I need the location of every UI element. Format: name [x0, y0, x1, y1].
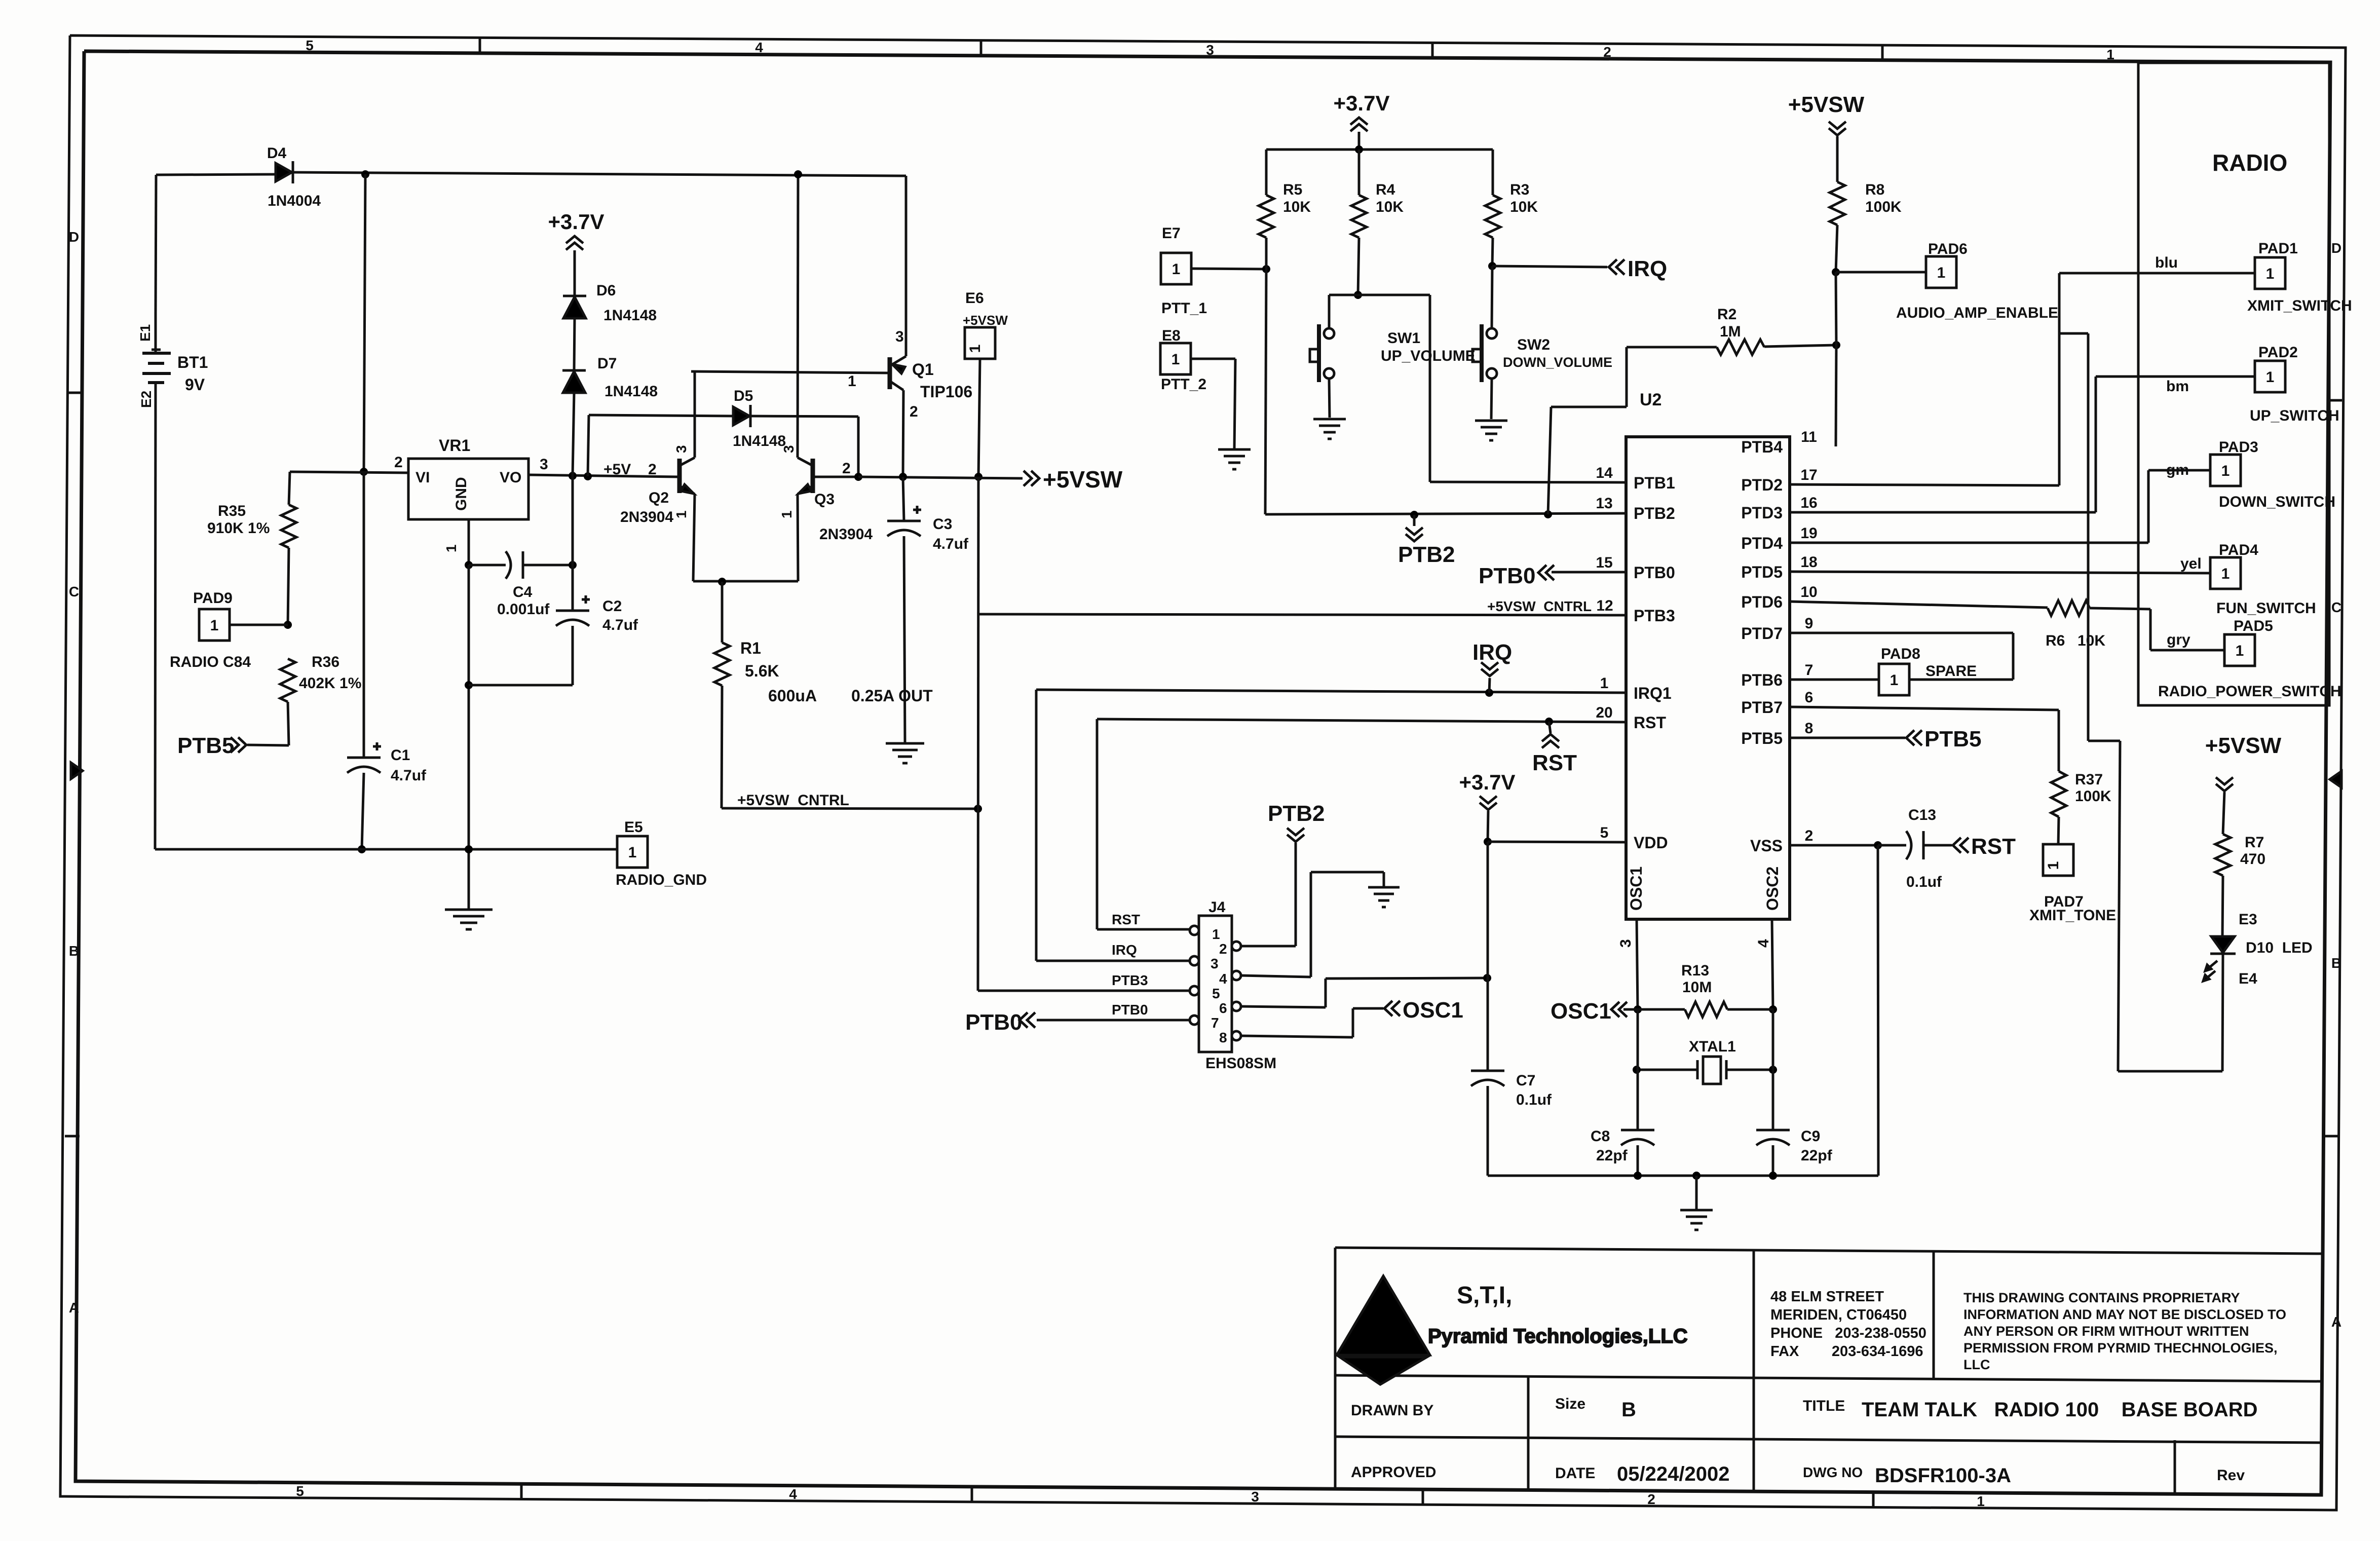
svg-text:1: 1 — [1600, 675, 1609, 692]
svg-text:IRQ: IRQ — [1112, 942, 1137, 958]
svg-text:11: 11 — [1801, 429, 1817, 445]
svg-text:C8: C8 — [1591, 1128, 1610, 1145]
svg-text:R5: R5 — [1283, 181, 1302, 198]
svg-text:C3: C3 — [933, 516, 952, 533]
svg-text:D5: D5 — [734, 388, 753, 404]
svg-text:+5VSW: +5VSW — [963, 313, 1008, 328]
svg-text:PERMISSION FROM PYRMID THECHNO: PERMISSION FROM PYRMID THECHNOLOGIES, — [1963, 1340, 2278, 1356]
svg-text:10K: 10K — [1376, 199, 1404, 215]
svg-text:R36: R36 — [312, 654, 339, 670]
svg-text:Q1: Q1 — [912, 360, 934, 379]
svg-text:R6: R6 — [2046, 632, 2065, 649]
svg-text:B: B — [69, 943, 79, 959]
svg-text:D10 LED: D10 LED — [2246, 939, 2313, 956]
svg-text:B: B — [2331, 955, 2341, 971]
svg-text:PTD4: PTD4 — [1741, 534, 1783, 552]
svg-text:1: 1 — [673, 510, 689, 518]
svg-text:RADIO_POWER_SWITCH: RADIO_POWER_SWITCH — [2158, 683, 2341, 700]
svg-text:XMIT_TONE: XMIT_TONE — [2029, 907, 2116, 924]
svg-text:PTB0: PTB0 — [1479, 563, 1535, 588]
svg-text:1: 1 — [2266, 266, 2275, 282]
svg-text:7: 7 — [1805, 662, 1814, 679]
svg-text:gry: gry — [2167, 631, 2190, 648]
svg-text:1N4004: 1N4004 — [268, 193, 321, 209]
svg-text:48 ELM STREET: 48 ELM STREET — [1770, 1289, 1884, 1305]
svg-text:100K: 100K — [2075, 788, 2111, 805]
svg-text:22pf: 22pf — [1801, 1147, 1833, 1164]
svg-text:R3: R3 — [1510, 181, 1529, 198]
svg-text:1: 1 — [1172, 261, 1181, 278]
svg-text:2: 2 — [1647, 1491, 1655, 1507]
svg-text:E3: E3 — [2239, 911, 2257, 928]
svg-text:DOWN_VOLUME: DOWN_VOLUME — [1503, 355, 1612, 370]
svg-text:C13: C13 — [1908, 807, 1936, 823]
svg-text:+5VSW: +5VSW — [2205, 733, 2282, 758]
svg-text:3: 3 — [540, 456, 548, 473]
svg-text:PHONE 203-238-0550: PHONE 203-238-0550 — [1770, 1325, 1926, 1341]
svg-text:5: 5 — [296, 1483, 304, 1499]
svg-text:A: A — [2331, 1314, 2341, 1330]
svg-text:10M: 10M — [1682, 979, 1712, 996]
svg-text:1: 1 — [1172, 351, 1180, 368]
svg-text:E6: E6 — [965, 290, 984, 307]
svg-text:1N4148: 1N4148 — [733, 433, 786, 449]
svg-text:RST: RST — [1532, 750, 1577, 775]
svg-text:+5V: +5V — [603, 461, 631, 478]
svg-text:1: 1 — [967, 345, 984, 353]
svg-text:FUN_SWITCH: FUN_SWITCH — [2216, 600, 2316, 617]
svg-text:3: 3 — [895, 328, 904, 345]
svg-text:VDD: VDD — [1634, 834, 1668, 852]
svg-text:C: C — [2331, 599, 2341, 615]
svg-text:D: D — [69, 229, 79, 245]
svg-text:1: 1 — [1977, 1493, 1985, 1509]
svg-text:17: 17 — [1800, 467, 1817, 483]
svg-text:PTT_1: PTT_1 — [1161, 300, 1207, 317]
svg-text:5: 5 — [1212, 986, 1220, 1001]
svg-text:MERIDEN, CT06450: MERIDEN, CT06450 — [1770, 1307, 1907, 1323]
svg-text:TEAM TALK RADIO 100 BASE: TEAM TALK RADIO 100 BASE BOARD — [1862, 1399, 2258, 1421]
svg-text:RADIO: RADIO — [2212, 149, 2287, 176]
svg-text:1N4148: 1N4148 — [603, 307, 657, 324]
svg-text:2: 2 — [842, 460, 851, 477]
svg-text:PAD6: PAD6 — [1928, 241, 1968, 257]
svg-text:D4: D4 — [267, 145, 287, 162]
svg-text:13: 13 — [1596, 495, 1612, 512]
svg-text:DRAWN BY: DRAWN BY — [1351, 1402, 1433, 1419]
svg-text:10: 10 — [1800, 584, 1817, 600]
svg-text:3: 3 — [1251, 1489, 1259, 1505]
svg-text:SW1: SW1 — [1387, 330, 1420, 347]
svg-text:C9: C9 — [1801, 1128, 1820, 1145]
svg-text:EHS08SM: EHS08SM — [1205, 1055, 1276, 1072]
svg-text:402K 1%: 402K 1% — [299, 675, 361, 692]
svg-text:6: 6 — [1219, 1000, 1227, 1016]
svg-text:910K 1%: 910K 1% — [207, 520, 270, 537]
svg-text:XMIT_SWITCH: XMIT_SWITCH — [2247, 297, 2352, 314]
svg-text:1: 1 — [2236, 643, 2244, 659]
svg-text:PAD1: PAD1 — [2258, 240, 2298, 257]
svg-text:20: 20 — [1596, 704, 1612, 721]
svg-text:PTB0: PTB0 — [1634, 563, 1675, 582]
svg-text:APPROVED: APPROVED — [1351, 1464, 1436, 1481]
svg-text:PTB0: PTB0 — [965, 1010, 1022, 1035]
svg-text:R7: R7 — [2245, 834, 2264, 851]
svg-text:PTB5: PTB5 — [1924, 727, 1981, 751]
svg-text:E7: E7 — [1162, 225, 1181, 242]
svg-text:D: D — [2331, 240, 2341, 256]
svg-text:15: 15 — [1596, 554, 1612, 571]
svg-text:05/224/2002: 05/224/2002 — [1617, 1463, 1729, 1485]
svg-text:C: C — [69, 584, 79, 599]
svg-text:1: 1 — [210, 617, 219, 634]
svg-text:9V: 9V — [185, 375, 205, 394]
svg-text:RST: RST — [1971, 834, 2016, 859]
svg-text:PTD7: PTD7 — [1741, 624, 1783, 643]
svg-text:9: 9 — [1805, 615, 1814, 632]
svg-text:OSC1: OSC1 — [1627, 867, 1645, 911]
svg-text:THIS DRAWING CONTAINS PROPRIET: THIS DRAWING CONTAINS PROPRIETARY — [1963, 1290, 2240, 1305]
svg-text:SW2: SW2 — [1517, 336, 1550, 353]
svg-text:1: 1 — [2045, 861, 2062, 870]
svg-text:0.25A OUT: 0.25A OUT — [851, 687, 933, 705]
svg-text:3: 3 — [673, 445, 689, 453]
svg-text:Pyramid Technologies,LLC: Pyramid Technologies,LLC — [1428, 1325, 1688, 1347]
svg-text:GND: GND — [453, 477, 470, 511]
svg-text:DWG NO: DWG NO — [1803, 1464, 1863, 1480]
svg-text:S,T,I,: S,T,I, — [1457, 1282, 1512, 1309]
svg-text:C1: C1 — [391, 747, 410, 764]
svg-text:4: 4 — [1755, 939, 1772, 948]
svg-text:16: 16 — [1800, 495, 1817, 511]
svg-text:bm: bm — [2166, 378, 2189, 395]
svg-text:14: 14 — [1596, 465, 1613, 481]
svg-text:IRQ: IRQ — [1628, 256, 1667, 281]
svg-text:PTD6: PTD6 — [1741, 593, 1783, 611]
svg-text:8: 8 — [1219, 1030, 1227, 1045]
svg-text:600uA: 600uA — [768, 687, 817, 705]
svg-text:1: 1 — [628, 844, 637, 861]
svg-text:0.1uf: 0.1uf — [1516, 1092, 1552, 1108]
svg-text:yel: yel — [2180, 555, 2202, 572]
svg-text:RADIO C84: RADIO C84 — [170, 654, 251, 670]
svg-text:1: 1 — [779, 510, 795, 518]
svg-text:R37: R37 — [2075, 771, 2103, 788]
svg-text:ANY PERSON OR FIRM WITHOUT WRI: ANY PERSON OR FIRM WITHOUT WRITTEN — [1963, 1324, 2249, 1339]
svg-text:RADIO_GND: RADIO_GND — [616, 872, 707, 888]
svg-text:2: 2 — [1603, 44, 1611, 60]
svg-text:INFORMATION AND MAY NOT BE DIS: INFORMATION AND MAY NOT BE DISCLOSED TO — [1963, 1307, 2286, 1322]
svg-text:blu: blu — [2155, 254, 2178, 271]
svg-text:RST: RST — [1112, 912, 1140, 927]
svg-text:gm: gm — [2166, 462, 2189, 478]
svg-text:PTB2: PTB2 — [1398, 542, 1455, 567]
svg-text:2N3904: 2N3904 — [819, 526, 873, 543]
svg-text:Size: Size — [1555, 1396, 1585, 1412]
svg-text:5.6K: 5.6K — [745, 662, 779, 680]
svg-text:1: 1 — [2266, 369, 2275, 386]
svg-text:TITLE: TITLE — [1803, 1398, 1845, 1414]
svg-text:PTD3: PTD3 — [1741, 504, 1783, 522]
svg-text:5: 5 — [1600, 824, 1609, 841]
svg-text:4.7uf: 4.7uf — [933, 536, 969, 552]
svg-text:0.001uf: 0.001uf — [497, 601, 550, 618]
svg-text:OSC1: OSC1 — [1551, 999, 1611, 1024]
svg-text:PTB5: PTB5 — [1741, 729, 1783, 747]
svg-text:5: 5 — [306, 37, 314, 53]
svg-text:470: 470 — [2240, 851, 2265, 868]
svg-text:2: 2 — [910, 403, 918, 420]
svg-text:R2: R2 — [1717, 306, 1736, 323]
svg-text:C7: C7 — [1516, 1072, 1535, 1089]
svg-text:PAD2: PAD2 — [2258, 344, 2298, 361]
svg-text:3: 3 — [1211, 956, 1219, 971]
svg-text:1: 1 — [2221, 463, 2230, 479]
svg-text:+3.7V: +3.7V — [548, 210, 605, 234]
svg-text:PTB6: PTB6 — [1741, 671, 1783, 689]
svg-text:R13: R13 — [1681, 962, 1709, 979]
svg-text:19: 19 — [1800, 525, 1817, 542]
svg-text:SPARE: SPARE — [1925, 663, 1977, 680]
svg-text:1: 1 — [1212, 926, 1220, 942]
svg-text:2N3904: 2N3904 — [620, 509, 673, 525]
svg-text:1N4148: 1N4148 — [605, 383, 658, 400]
svg-text:PAD9: PAD9 — [193, 590, 233, 607]
svg-text:IRQ: IRQ — [1472, 640, 1512, 665]
svg-text:DOWN_SWITCH: DOWN_SWITCH — [2219, 494, 2335, 510]
svg-text:6: 6 — [1805, 689, 1814, 706]
svg-text:10K: 10K — [1510, 199, 1538, 215]
svg-text:PTD2: PTD2 — [1741, 476, 1783, 494]
svg-text:1: 1 — [1890, 672, 1899, 689]
svg-text:+5VSW: +5VSW — [1043, 466, 1123, 493]
svg-text:2: 2 — [648, 461, 657, 478]
svg-text:1: 1 — [443, 544, 459, 552]
svg-text:Q3: Q3 — [814, 491, 835, 508]
svg-text:VO: VO — [500, 469, 521, 486]
svg-text:J4: J4 — [1208, 899, 1226, 916]
svg-text:4.7uf: 4.7uf — [391, 767, 427, 784]
svg-text:3: 3 — [1206, 42, 1214, 58]
svg-text:1: 1 — [1937, 265, 1946, 281]
svg-text:E2: E2 — [138, 391, 154, 408]
svg-text:DATE: DATE — [1555, 1465, 1595, 1482]
svg-text:18: 18 — [1800, 554, 1817, 571]
svg-text:100K: 100K — [1865, 199, 1902, 215]
svg-text:12: 12 — [1596, 597, 1613, 614]
svg-text:4: 4 — [1219, 971, 1227, 987]
svg-text:PAD4: PAD4 — [2219, 542, 2258, 558]
svg-text:1M: 1M — [1720, 323, 1741, 340]
svg-text:+5VSW CNTRL: +5VSW CNTRL — [1487, 598, 1592, 614]
svg-text:VI: VI — [415, 469, 430, 486]
svg-text:4: 4 — [789, 1486, 797, 1502]
svg-text:UP_SWITCH: UP_SWITCH — [2250, 407, 2339, 424]
svg-text:3: 3 — [1617, 939, 1634, 948]
svg-text:Rev: Rev — [2217, 1467, 2245, 1484]
svg-text:D7: D7 — [597, 355, 617, 372]
svg-text:8: 8 — [1805, 720, 1814, 737]
svg-text:2: 2 — [1219, 941, 1227, 957]
svg-text:E5: E5 — [624, 819, 643, 836]
svg-text:PTB2: PTB2 — [1634, 504, 1675, 522]
svg-text:2: 2 — [1805, 828, 1814, 844]
svg-text:RST: RST — [1634, 713, 1666, 732]
svg-text:PTB4: PTB4 — [1741, 438, 1783, 456]
svg-text:UP_VOLUME: UP_VOLUME — [1381, 348, 1476, 364]
svg-text:PTT_2: PTT_2 — [1161, 376, 1206, 393]
svg-text:10K: 10K — [2077, 632, 2105, 649]
svg-text:PAD5: PAD5 — [2234, 618, 2273, 634]
svg-text:A: A — [69, 1300, 79, 1316]
svg-text:1: 1 — [2221, 566, 2230, 582]
svg-text:+3.7V: +3.7V — [1334, 91, 1390, 115]
svg-text:0.1uf: 0.1uf — [1906, 874, 1942, 890]
svg-text:IRQ1: IRQ1 — [1634, 684, 1672, 702]
svg-text:AUDIO_AMP_ENABLE: AUDIO_AMP_ENABLE — [1896, 305, 2058, 321]
svg-text:LLC: LLC — [1963, 1357, 1990, 1372]
svg-text:BDSFR100-3A: BDSFR100-3A — [1875, 1464, 2011, 1487]
svg-text:1: 1 — [2106, 47, 2114, 62]
svg-text:10K: 10K — [1283, 199, 1311, 215]
svg-text:E1: E1 — [137, 324, 153, 342]
svg-text:+3.7V: +3.7V — [1459, 770, 1516, 794]
svg-text:B: B — [1621, 1399, 1636, 1421]
svg-text:VSS: VSS — [1750, 837, 1783, 855]
svg-text:FAX 203-634-1696: FAX 203-634-1696 — [1770, 1343, 1923, 1360]
svg-text:U2: U2 — [1640, 390, 1661, 409]
svg-text:Q2: Q2 — [649, 490, 669, 506]
svg-text:R8: R8 — [1865, 181, 1884, 198]
svg-text:E8: E8 — [1162, 327, 1181, 344]
svg-text:4.7uf: 4.7uf — [602, 617, 638, 633]
svg-text:2: 2 — [394, 454, 403, 471]
svg-text:+5VSW: +5VSW — [1788, 92, 1865, 117]
svg-text:C4: C4 — [513, 584, 533, 600]
svg-text:XTAL1: XTAL1 — [1689, 1038, 1736, 1055]
svg-text:1: 1 — [848, 373, 856, 390]
svg-text:VR1: VR1 — [439, 436, 470, 455]
svg-text:C2: C2 — [602, 598, 622, 615]
svg-text:PTB3: PTB3 — [1634, 607, 1675, 625]
svg-text:PAD3: PAD3 — [2219, 439, 2258, 456]
svg-text:PTB7: PTB7 — [1741, 698, 1783, 717]
svg-text:TIP106: TIP106 — [920, 383, 972, 401]
svg-text:22pf: 22pf — [1596, 1147, 1628, 1164]
svg-text:PTB1: PTB1 — [1634, 474, 1675, 492]
svg-text:4: 4 — [755, 40, 763, 55]
svg-text:R35: R35 — [218, 503, 246, 519]
svg-text:7: 7 — [1211, 1015, 1219, 1031]
svg-text:PTB2: PTB2 — [1268, 801, 1325, 826]
svg-text:PTD5: PTD5 — [1741, 563, 1783, 581]
svg-text:OSC2: OSC2 — [1763, 867, 1782, 911]
svg-text:R1: R1 — [740, 639, 761, 657]
svg-text:OSC1: OSC1 — [1403, 998, 1463, 1023]
svg-text:PTB3: PTB3 — [1112, 972, 1148, 988]
svg-text:PTB5: PTB5 — [177, 733, 234, 758]
svg-text:+5VSW CNTRL: +5VSW CNTRL — [737, 792, 849, 809]
svg-text:BT1: BT1 — [177, 353, 208, 371]
svg-text:E4: E4 — [2239, 970, 2257, 987]
svg-text:PAD8: PAD8 — [1881, 646, 1920, 662]
svg-text:PTB0: PTB0 — [1112, 1002, 1148, 1018]
svg-text:R4: R4 — [1376, 181, 1395, 198]
svg-text:D6: D6 — [596, 282, 616, 299]
